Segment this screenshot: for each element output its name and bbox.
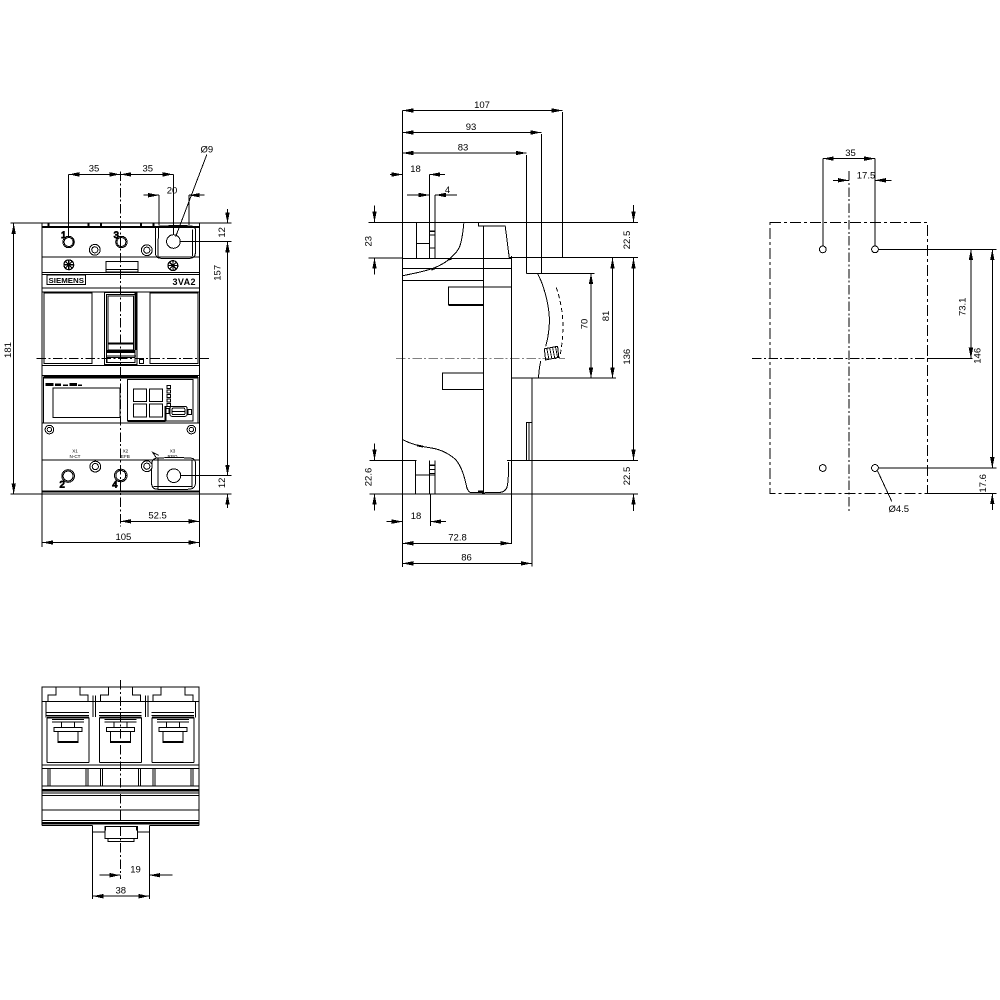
- svg-text:72.8: 72.8: [448, 533, 467, 544]
- svg-text:52.5: 52.5: [148, 511, 167, 522]
- svg-text:3VA2: 3VA2: [173, 277, 196, 287]
- svg-text:1: 1: [61, 230, 66, 241]
- svg-text:35: 35: [89, 164, 100, 175]
- svg-text:N-CT: N-CT: [70, 454, 81, 459]
- svg-text:X2: X2: [123, 449, 129, 454]
- svg-text:136: 136: [622, 349, 633, 365]
- svg-text:2: 2: [60, 480, 65, 491]
- svg-text:157: 157: [213, 265, 224, 281]
- svg-text:X1: X1: [72, 449, 78, 454]
- svg-text:12: 12: [217, 478, 228, 489]
- svg-text:35: 35: [845, 148, 856, 159]
- svg-text:105: 105: [115, 532, 131, 543]
- svg-text:73.1: 73.1: [958, 298, 969, 317]
- svg-text:X3: X3: [170, 449, 176, 454]
- svg-text:3: 3: [114, 230, 119, 241]
- svg-text:18: 18: [410, 164, 421, 175]
- svg-text:12: 12: [217, 227, 228, 238]
- svg-text:SIEMENS: SIEMENS: [49, 276, 85, 285]
- svg-text:81: 81: [601, 311, 612, 322]
- svg-text:17.6: 17.6: [978, 474, 989, 493]
- svg-text:146: 146: [973, 348, 984, 364]
- svg-text:86: 86: [461, 553, 472, 564]
- svg-text:RPO: RPO: [168, 454, 178, 459]
- svg-text:22.5: 22.5: [622, 231, 633, 250]
- svg-text:4: 4: [445, 185, 450, 196]
- svg-text:35: 35: [143, 164, 154, 175]
- svg-text:19: 19: [130, 864, 141, 875]
- svg-text:70: 70: [580, 319, 591, 330]
- svg-text:4: 4: [112, 480, 117, 491]
- svg-text:93: 93: [466, 122, 477, 133]
- svg-text:EFB: EFB: [121, 454, 130, 459]
- svg-text:83: 83: [458, 142, 469, 153]
- svg-text:Ø9: Ø9: [201, 145, 214, 156]
- svg-text:20: 20: [167, 185, 178, 196]
- svg-text:107: 107: [474, 100, 490, 111]
- svg-text:38: 38: [116, 885, 127, 896]
- svg-text:17.5: 17.5: [857, 171, 876, 182]
- svg-text:181: 181: [3, 342, 14, 358]
- svg-text:18: 18: [411, 511, 422, 522]
- svg-text:22.5: 22.5: [622, 467, 633, 486]
- svg-text:Ø4.5: Ø4.5: [889, 504, 910, 515]
- svg-text:22.6: 22.6: [363, 468, 374, 487]
- svg-text:23: 23: [363, 236, 374, 247]
